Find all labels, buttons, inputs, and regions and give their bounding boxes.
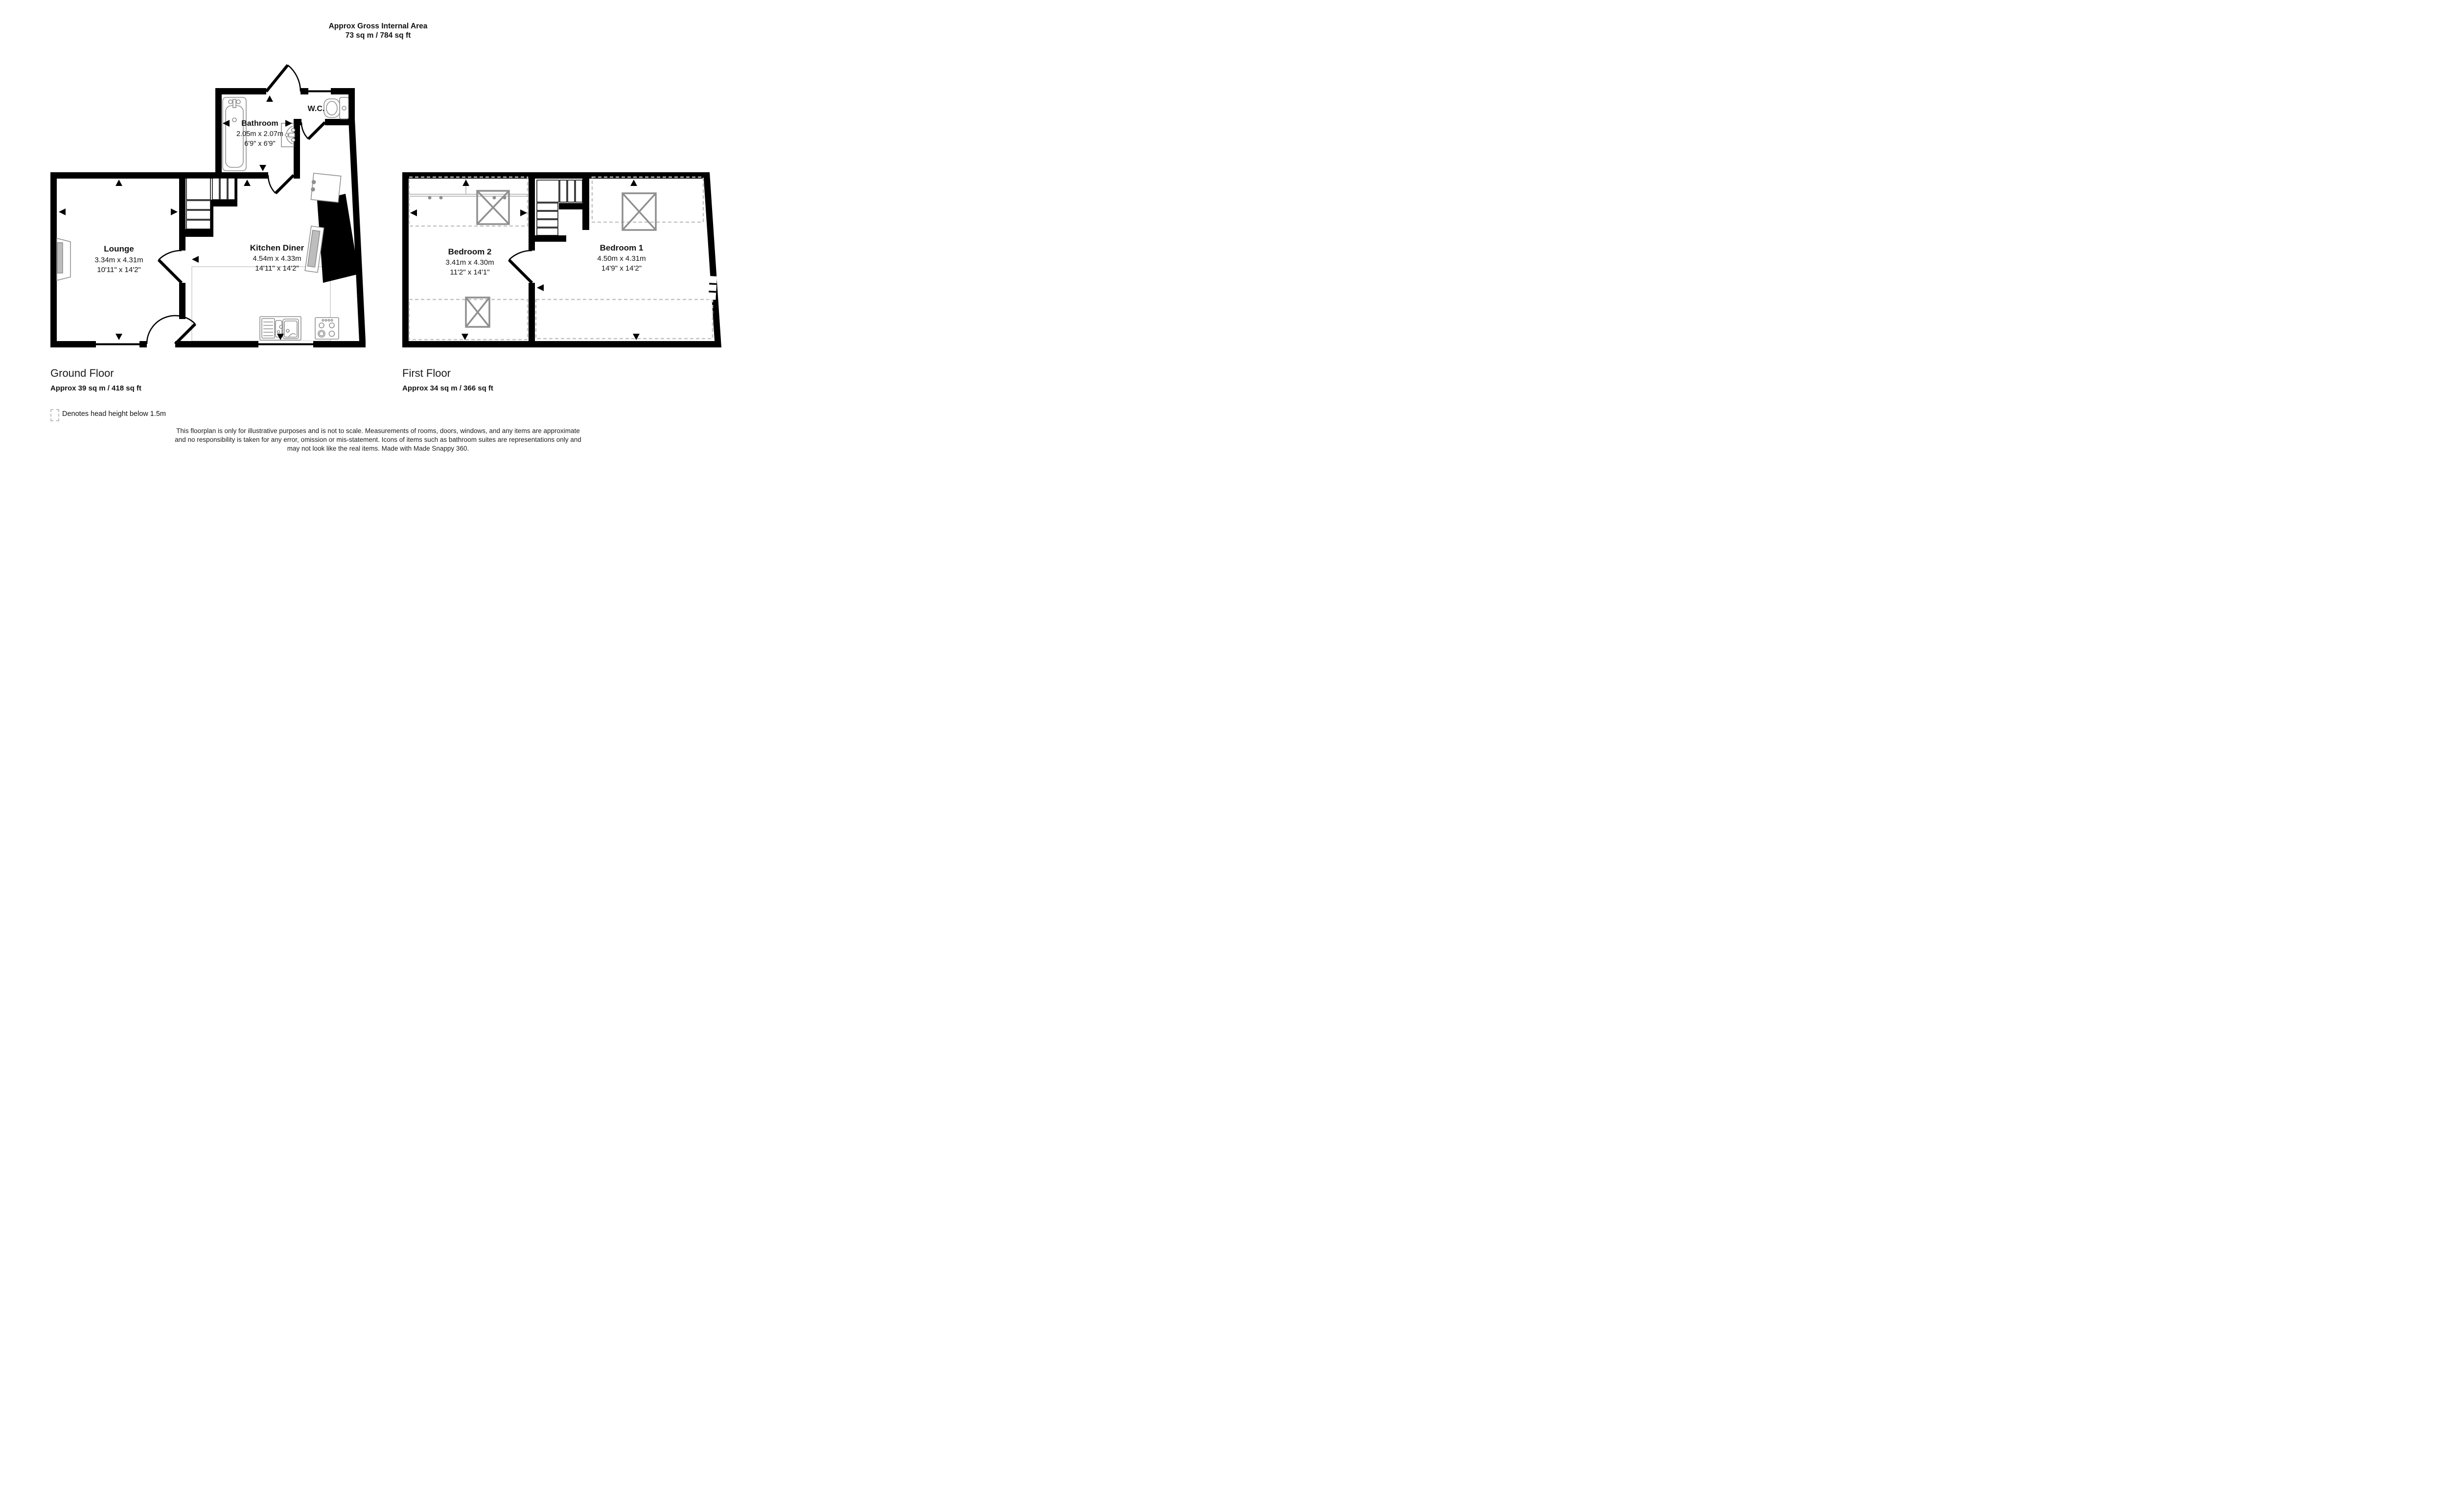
svg-text:14'11" x 14'2": 14'11" x 14'2" bbox=[255, 264, 299, 273]
room-bedroom1: Bedroom 1 4.50m x 4.31m 14'9" x 14'2" bbox=[597, 243, 646, 273]
roof-window-icon bbox=[466, 298, 489, 327]
fireplace-icon bbox=[57, 238, 70, 280]
svg-text:Bathroom: Bathroom bbox=[241, 119, 278, 128]
disclaimer: This floorplan is only for illustrative … bbox=[0, 427, 756, 453]
svg-text:11'2" x 14'1": 11'2" x 14'1" bbox=[450, 268, 489, 276]
entry-door bbox=[266, 65, 300, 92]
arrow-up-icon bbox=[244, 180, 251, 186]
arrow-down-icon bbox=[115, 334, 122, 340]
svg-text:Lounge: Lounge bbox=[104, 244, 134, 253]
svg-text:4.54m x 4.33m: 4.54m x 4.33m bbox=[253, 254, 301, 263]
bathroom-sink-icon bbox=[281, 123, 295, 147]
legend-text: Denotes head height below 1.5m bbox=[62, 410, 166, 418]
ground-floor-stairs bbox=[185, 178, 237, 237]
arrow-up-icon bbox=[630, 180, 637, 186]
arrow-up-icon bbox=[115, 180, 122, 186]
first-floor-labels: Bedroom 2 3.41m x 4.30m 11'2" x 14'1" Be… bbox=[445, 243, 646, 276]
bathroom-door bbox=[268, 175, 294, 193]
ground-floor-caption: Ground Floor Approx 39 sq m / 418 sq ft bbox=[50, 367, 256, 392]
ground-floor-label: Ground Floor bbox=[50, 367, 256, 380]
svg-text:W.C.: W.C. bbox=[308, 105, 325, 113]
head-height-swatch-icon bbox=[50, 409, 59, 421]
disclaimer-line1: This floorplan is only for illustrative … bbox=[0, 427, 756, 435]
first-floor-label: First Floor bbox=[402, 367, 608, 380]
room-wc: W.C. bbox=[308, 105, 325, 113]
svg-text:Bedroom 2: Bedroom 2 bbox=[448, 247, 492, 256]
svg-text:10'11" x 14'2": 10'11" x 14'2" bbox=[97, 266, 141, 274]
disclaimer-line3: may not look like the real items. Made w… bbox=[0, 444, 756, 453]
roof-window-icon bbox=[623, 193, 656, 230]
svg-text:2.05m x 2.07m: 2.05m x 2.07m bbox=[236, 130, 283, 138]
stove-icon bbox=[305, 226, 324, 273]
bedroom1-window bbox=[708, 276, 717, 300]
arrow-left-icon bbox=[192, 256, 199, 263]
first-floor-caption: First Floor Approx 34 sq m / 366 sq ft bbox=[402, 367, 608, 392]
roof-window-icon bbox=[477, 191, 509, 224]
kitchen-window bbox=[258, 341, 313, 347]
arrow-left-icon bbox=[537, 284, 544, 291]
wc-window bbox=[308, 88, 331, 94]
hob-icon bbox=[315, 318, 339, 339]
lounge-window bbox=[96, 341, 139, 347]
room-bedroom2: Bedroom 2 3.41m x 4.30m 11'2" x 14'1" bbox=[445, 247, 494, 276]
arrow-up-icon bbox=[462, 180, 469, 186]
wc-door bbox=[301, 122, 325, 139]
chimney-breast bbox=[317, 194, 359, 283]
head-height-region bbox=[536, 299, 713, 339]
arrow-right-icon bbox=[520, 209, 527, 216]
arrow-left-icon bbox=[410, 209, 417, 216]
svg-text:Kitchen Diner: Kitchen Diner bbox=[250, 243, 304, 252]
arrow-down-icon bbox=[259, 165, 266, 171]
arrow-left-icon bbox=[59, 208, 66, 215]
arrow-right-icon bbox=[171, 208, 178, 215]
room-kitchen-diner: Kitchen Diner 4.54m x 4.33m 14'11" x 14'… bbox=[250, 243, 304, 273]
first-floor-area: Approx 34 sq m / 366 sq ft bbox=[402, 384, 608, 392]
lounge-door bbox=[159, 251, 182, 283]
svg-text:Bedroom 1: Bedroom 1 bbox=[600, 243, 644, 252]
svg-text:14'9" x 14'2": 14'9" x 14'2" bbox=[601, 264, 642, 273]
svg-text:3.41m x 4.30m: 3.41m x 4.30m bbox=[445, 258, 494, 267]
bedroom-door bbox=[509, 251, 532, 283]
head-height-region bbox=[409, 299, 528, 340]
arrow-up-icon bbox=[266, 95, 273, 102]
svg-text:3.34m x 4.31m: 3.34m x 4.31m bbox=[94, 256, 143, 264]
head-height-region bbox=[592, 177, 703, 222]
kitchen-counter-icon bbox=[310, 173, 341, 203]
ground-floor-area: Approx 39 sq m / 418 sq ft bbox=[50, 384, 256, 392]
ground-floor-plan: Lounge 3.34m x 4.31m 10'11" x 14'2" Kitc… bbox=[50, 65, 366, 347]
toilet-icon bbox=[324, 97, 348, 119]
rear-door bbox=[147, 316, 195, 344]
first-floor-plan: Bedroom 2 3.41m x 4.30m 11'2" x 14'1" Be… bbox=[402, 172, 721, 347]
disclaimer-line2: and no responsibility is taken for any e… bbox=[0, 435, 756, 444]
svg-text:6'9" x 6'9": 6'9" x 6'9" bbox=[244, 140, 275, 148]
room-lounge: Lounge 3.34m x 4.31m 10'11" x 14'2" bbox=[94, 244, 143, 274]
floorplan-page: Approx Gross Internal Area 73 sq m / 784… bbox=[0, 0, 756, 458]
svg-text:4.50m x 4.31m: 4.50m x 4.31m bbox=[597, 254, 646, 263]
